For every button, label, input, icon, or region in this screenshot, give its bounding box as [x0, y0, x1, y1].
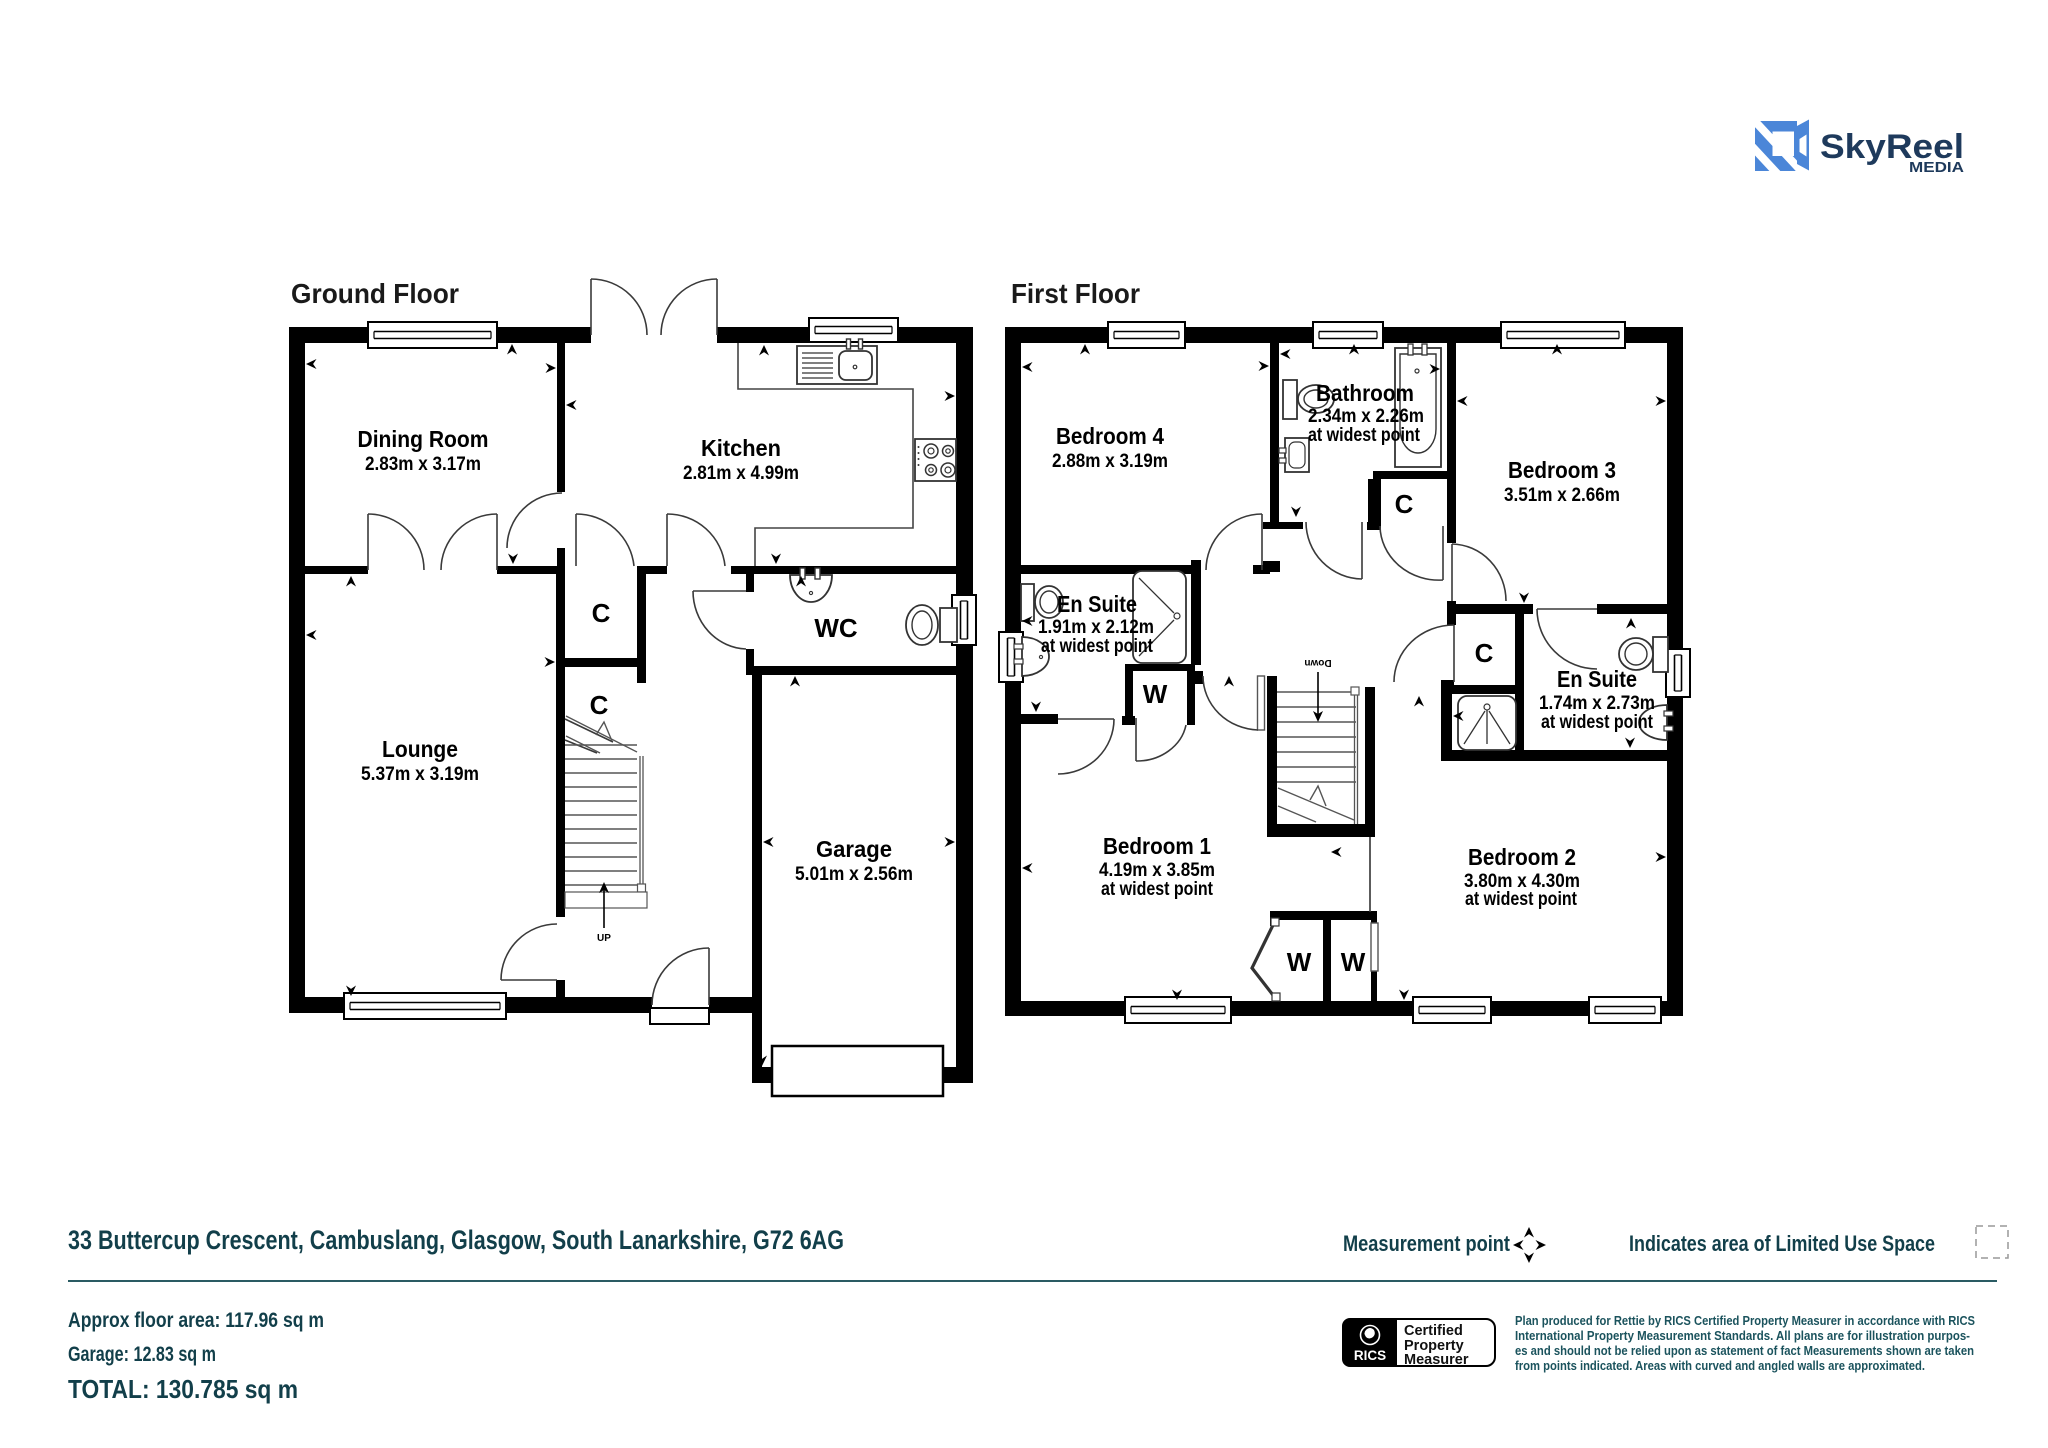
svg-text:Plan produced for Rettie by RI: Plan produced for Rettie by RICS Certifi… [1515, 1313, 1975, 1328]
svg-text:Lounge: Lounge [382, 736, 458, 762]
svg-text:En Suite: En Suite [1057, 591, 1137, 617]
svg-text:Bedroom 4: Bedroom 4 [1056, 423, 1164, 449]
svg-text:MEDIA: MEDIA [1909, 159, 1964, 176]
svg-text:W: W [1287, 947, 1312, 977]
svg-text:at widest point: at widest point [1465, 889, 1578, 910]
svg-text:Approx floor area: 117.96 sq m: Approx floor area: 117.96 sq m [68, 1309, 324, 1332]
svg-text:Kitchen: Kitchen [701, 435, 781, 461]
svg-text:1.91m x 2.12m: 1.91m x 2.12m [1038, 616, 1154, 638]
svg-text:2.88m x 3.19m: 2.88m x 3.19m [1052, 450, 1168, 472]
svg-text:5.37m x 3.19m: 5.37m x 3.19m [361, 763, 479, 785]
svg-text:Measurement point: Measurement point [1343, 1231, 1511, 1256]
svg-text:Measurer: Measurer [1404, 1352, 1469, 1368]
svg-text:Bathroom: Bathroom [1316, 380, 1414, 406]
svg-text:RICS: RICS [1354, 1348, 1386, 1363]
svg-text:4.19m x 3.85m: 4.19m x 3.85m [1099, 859, 1215, 881]
svg-text:2.81m x 4.99m: 2.81m x 4.99m [683, 462, 799, 484]
svg-text:Garage: 12.83 sq m: Garage: 12.83 sq m [68, 1343, 216, 1366]
svg-text:2.83m x 3.17m: 2.83m x 3.17m [365, 453, 481, 475]
svg-text:UP: UP [597, 933, 611, 944]
svg-text:Bedroom 1: Bedroom 1 [1103, 833, 1211, 859]
svg-text:Garage: Garage [816, 836, 892, 862]
svg-text:En Suite: En Suite [1557, 666, 1637, 692]
svg-text:at widest point: at widest point [1308, 425, 1421, 446]
svg-text:33 Buttercup Crescent, Cambusl: 33 Buttercup Crescent, Cambuslang, Glasg… [68, 1225, 844, 1255]
svg-text:3.51m x 2.66m: 3.51m x 2.66m [1504, 484, 1620, 506]
svg-text:W: W [1341, 947, 1366, 977]
svg-text:International Property Measur: International Property Measurement Stand… [1515, 1328, 1970, 1343]
svg-text:C: C [590, 690, 609, 720]
svg-text:Ground Floor: Ground Floor [291, 278, 459, 309]
svg-text:TOTAL: 130.785 sq m: TOTAL: 130.785 sq m [68, 1374, 298, 1404]
svg-text:Dining Room: Dining Room [358, 426, 489, 452]
svg-text:at widest point: at widest point [1041, 636, 1154, 657]
svg-text:1.74m x 2.73m: 1.74m x 2.73m [1539, 692, 1655, 714]
svg-text:at widest point: at widest point [1541, 712, 1654, 733]
svg-text:C: C [1395, 489, 1414, 519]
svg-text:Indicates area of Limited Use: Indicates area of Limited Use Space [1629, 1231, 1935, 1256]
svg-text:5.01m x 2.56m: 5.01m x 2.56m [795, 863, 913, 885]
svg-text:Bedroom 3: Bedroom 3 [1508, 457, 1616, 483]
svg-text:Certified: Certified [1404, 1323, 1463, 1339]
svg-text:C: C [1475, 638, 1494, 668]
svg-text:First Floor: First Floor [1011, 278, 1140, 309]
svg-text:WC: WC [814, 613, 858, 643]
svg-text:at widest point: at widest point [1101, 879, 1214, 900]
svg-text:from points indicated. Areas w: from points indicated. Areas with curved… [1515, 1358, 1925, 1373]
svg-text:W: W [1143, 679, 1168, 709]
svg-text:es and should not be relied up: es and should not be relied upon as stat… [1515, 1343, 1974, 1358]
svg-text:Bedroom 2: Bedroom 2 [1468, 844, 1576, 870]
svg-text:Down: Down [1304, 657, 1331, 668]
svg-text:2.34m x 2.26m: 2.34m x 2.26m [1308, 405, 1424, 427]
svg-text:C: C [592, 598, 611, 628]
